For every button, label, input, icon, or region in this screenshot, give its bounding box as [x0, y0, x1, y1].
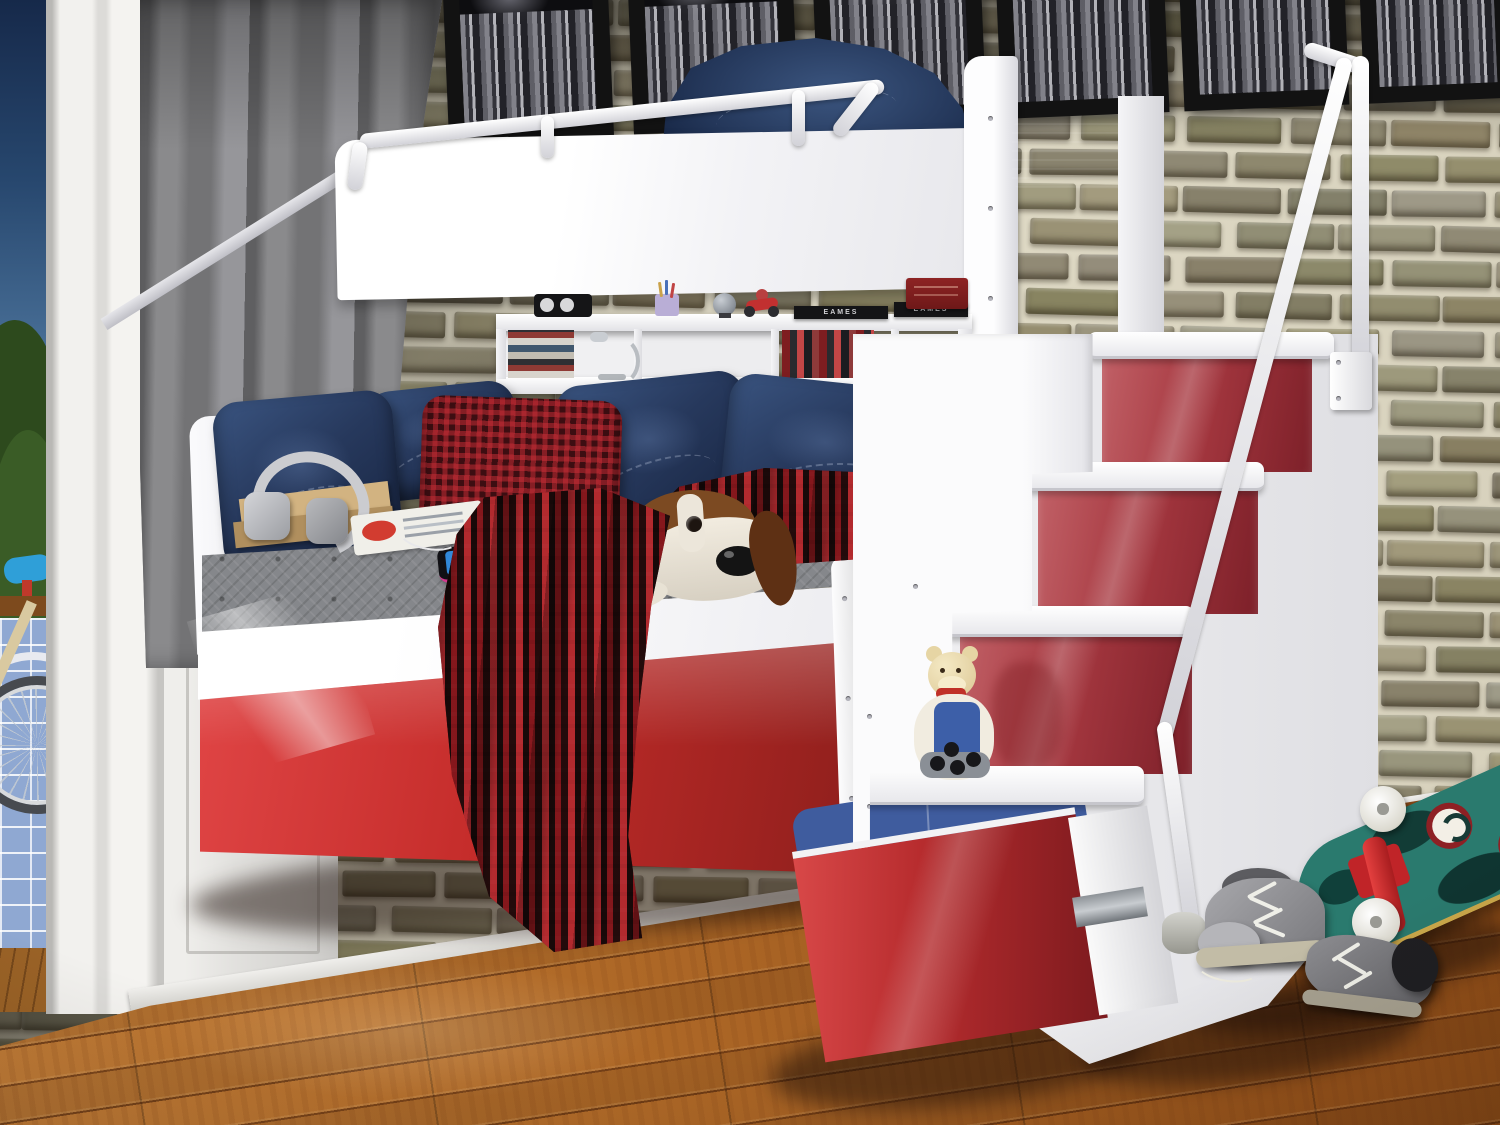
- brick: [1391, 190, 1485, 217]
- brick: [1392, 260, 1491, 288]
- brick: [1182, 186, 1280, 214]
- brick: [1496, 262, 1500, 290]
- stair-riser-red: [1102, 347, 1312, 472]
- upper-bunk-panel: [335, 128, 990, 300]
- brick: [1385, 610, 1484, 638]
- brick: [1436, 716, 1500, 744]
- octopus-eye: [1491, 813, 1500, 876]
- brick: [1025, 288, 1121, 317]
- city-photo: [457, 0, 597, 126]
- brick: [1495, 332, 1500, 360]
- city-photo: [1372, 0, 1497, 87]
- brick: [1379, 750, 1473, 778]
- desk-lamp-base: [598, 374, 626, 380]
- headphones-earcup: [306, 498, 348, 544]
- brick: [1441, 226, 1500, 254]
- brick: [1446, 157, 1500, 184]
- brick: [1443, 296, 1500, 323]
- picture-frame: [1356, 0, 1500, 104]
- alarm-clock: [534, 294, 592, 317]
- handrail-post: [1352, 56, 1369, 376]
- brick: [1435, 576, 1500, 604]
- brick: [1387, 470, 1478, 497]
- stair-tread: [1088, 332, 1334, 359]
- book-stack: [508, 330, 574, 378]
- room-scene: EAMES EAMES GAU: [0, 0, 1500, 1125]
- shelf-divider: [771, 329, 779, 379]
- eames-books: EAMES: [794, 306, 888, 319]
- brick: [1392, 330, 1484, 358]
- brick: [1382, 680, 1480, 707]
- teddy-paw: [950, 760, 965, 775]
- globe-base: [719, 313, 731, 318]
- pencil-cup: [655, 294, 679, 316]
- brick: [1391, 120, 1490, 148]
- brick: [1186, 257, 1286, 284]
- toy-motorbike-wheel: [768, 306, 779, 317]
- handrail-wall-bracket: [1330, 352, 1372, 410]
- brick: [1486, 682, 1500, 709]
- teddy-paw: [966, 752, 981, 767]
- brick: [1237, 222, 1335, 250]
- brick: [1440, 436, 1500, 464]
- teddy-eye: [940, 668, 945, 673]
- brick: [1387, 540, 1484, 568]
- headphones-earcup: [244, 492, 290, 540]
- shelf-side: [496, 329, 506, 379]
- teddy-paw: [930, 756, 945, 771]
- skateboard-wheel: [1360, 786, 1406, 832]
- brick: [1443, 366, 1500, 394]
- brick: [1493, 402, 1500, 430]
- octopus-eye: [1419, 795, 1480, 856]
- bed-side-board: [1118, 96, 1164, 364]
- teddy-eye: [956, 668, 961, 673]
- guard-rail-support: [541, 116, 554, 158]
- brick: [1489, 612, 1500, 640]
- brick: [1494, 192, 1500, 221]
- brick: [1437, 506, 1500, 534]
- guard-rail-support: [792, 90, 805, 146]
- red-storage-box: [906, 278, 968, 309]
- teddy-paw: [944, 742, 959, 757]
- brick: [1390, 400, 1484, 429]
- teddy-reflection: [992, 662, 1062, 770]
- upper-end-panel: [964, 56, 1018, 358]
- toy-motorbike-wheel: [744, 306, 755, 317]
- brick: [1489, 542, 1500, 570]
- brick: [1030, 218, 1125, 247]
- brick: [1493, 472, 1500, 499]
- drawer-red-front: [792, 807, 1108, 1062]
- brick: [1436, 646, 1500, 673]
- city-photo: [1010, 0, 1153, 102]
- dog-eye: [686, 516, 702, 532]
- bicycle-seatpost: [22, 580, 32, 596]
